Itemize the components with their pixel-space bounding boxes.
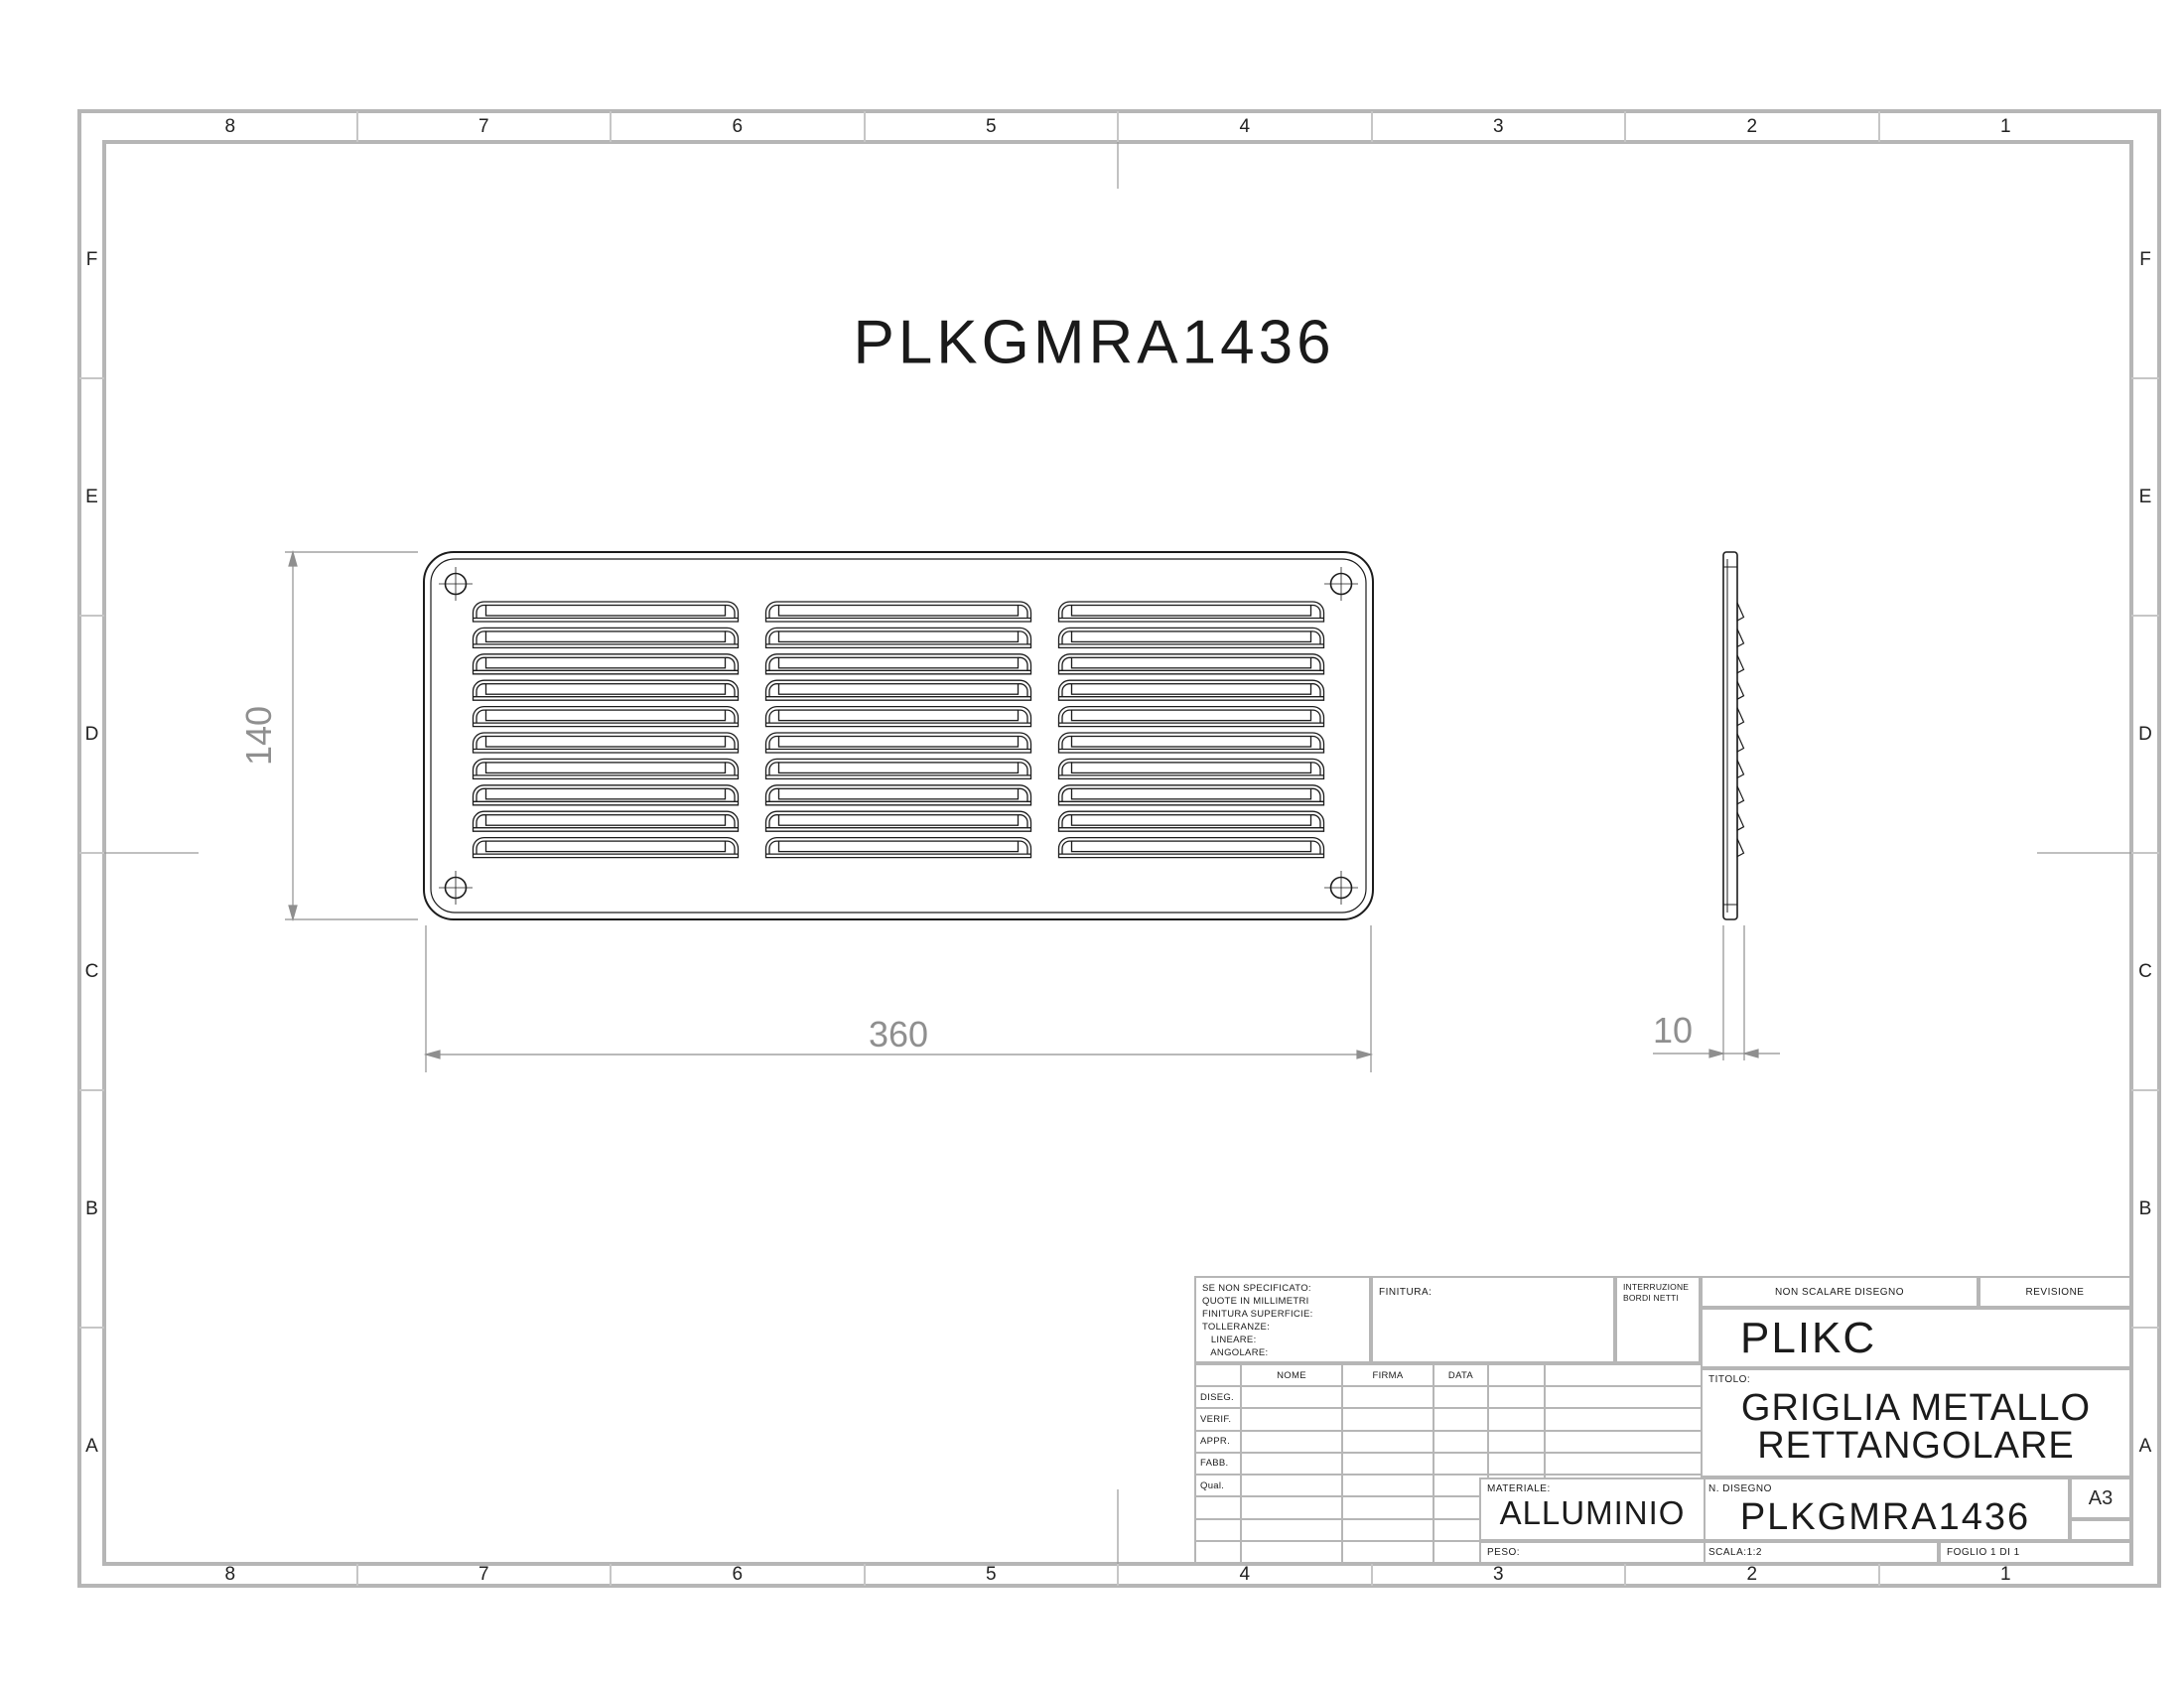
signoff-cell: [1489, 1387, 1544, 1407]
signoff-cell: [1343, 1409, 1433, 1429]
grid-column-label: 7: [356, 111, 611, 142]
signoff-cell: APPR.: [1196, 1432, 1240, 1452]
signoff-cell: [1196, 1497, 1240, 1517]
signoff-cell: VERIF.: [1196, 1409, 1240, 1429]
dimension-depth: 10: [1653, 1010, 1693, 1052]
signoff-cell: [1343, 1476, 1433, 1495]
signoff-cell: [1196, 1520, 1240, 1540]
signoff-cell: [1343, 1520, 1433, 1540]
signoff-cell: Qual.: [1196, 1476, 1240, 1495]
grid-column-label: 7: [356, 1564, 611, 1586]
grid-column-label: 2: [1624, 111, 1878, 142]
scale-value: SCALA:1:2: [1708, 1547, 1762, 1558]
paper-size-empty-cell: [2070, 1519, 2131, 1541]
signoff-cell: [1242, 1542, 1341, 1562]
part-title-line2: RETTANGOLARE: [1708, 1427, 2123, 1465]
grid-row-label: F: [2131, 142, 2159, 377]
signoff-cell: [1434, 1409, 1487, 1429]
signoff-header-cell: NOME: [1242, 1365, 1341, 1385]
dimension-height: 140: [238, 706, 280, 766]
signoff-cell: [1242, 1520, 1341, 1540]
paper-size-value: A3: [2089, 1487, 2113, 1510]
grid-column-label: 8: [104, 1564, 356, 1586]
signoff-cell: [1546, 1432, 1712, 1452]
drawing-number-label: N. DISEGNO: [1708, 1483, 2062, 1494]
grid-row-label: B: [2131, 1089, 2159, 1327]
grid-row-label: B: [79, 1089, 104, 1327]
signoff-cell: [1242, 1497, 1341, 1517]
border-row-letters-left: FEDCBA: [79, 142, 104, 1564]
signoff-cell: [1343, 1497, 1433, 1517]
tolerance-notes-cell: SE NON SPECIFICATO:QUOTE IN MILLIMETRIFI…: [1194, 1276, 1371, 1363]
signoff-cell: [1489, 1432, 1544, 1452]
dimension-width: 360: [869, 1014, 928, 1055]
grid-row-label: D: [2131, 615, 2159, 852]
tolerance-note-line: ANGOLARE:: [1202, 1346, 1363, 1359]
signoff-cell: [1242, 1387, 1341, 1407]
deburr-cell: INTERRUZIONEBORDI NETTI: [1615, 1276, 1701, 1363]
drawing-sheet: { "sheet": { "big_title": "PLKGMRA1436",…: [0, 0, 2184, 1688]
revision-label: REVISIONE: [2026, 1287, 2085, 1298]
border-row-letters-right: FEDCBA: [2131, 142, 2159, 1564]
grid-column-label: 1: [1878, 1564, 2132, 1586]
signoff-cell: [1343, 1542, 1433, 1562]
grid-column-label: 5: [864, 111, 1118, 142]
grid-row-label: E: [2131, 377, 2159, 615]
weight-label: PESO:: [1487, 1547, 1520, 1558]
signoff-cell: [1546, 1409, 1712, 1429]
tolerance-note-line: LINEARE:: [1202, 1334, 1363, 1346]
signoff-cell: [1196, 1542, 1240, 1562]
signoff-header-cell: [1489, 1365, 1544, 1385]
paper-size-cell: A3: [2070, 1477, 2131, 1519]
signoff-cell: DISEG.: [1196, 1387, 1240, 1407]
drawing-big-title: PLKGMRA1436: [853, 308, 1334, 378]
side-louver-tabs: [1737, 603, 1744, 857]
signoff-header-cell: [1546, 1365, 1712, 1385]
material-label: MATERIALE:: [1487, 1483, 1698, 1494]
grid-column-label: 4: [1117, 1564, 1371, 1586]
signoff-cell: [1343, 1454, 1433, 1474]
drawing-number-value: PLKGMRA1436: [1708, 1496, 2062, 1539]
drawing-number-cell: N. DISEGNO PLKGMRA1436: [1701, 1477, 2070, 1541]
signoff-header-cell: FIRMA: [1343, 1365, 1433, 1385]
grid-column-label: 2: [1624, 1564, 1878, 1586]
signoff-cell: [1242, 1454, 1341, 1474]
signoff-cell: [1546, 1454, 1712, 1474]
grid-column-label: 1: [1878, 111, 2132, 142]
tolerance-note-line: SE NON SPECIFICATO:: [1202, 1282, 1363, 1295]
part-title: GRIGLIA METALLO RETTANGOLARE: [1708, 1389, 2123, 1465]
grid-row-label: A: [79, 1327, 104, 1564]
signoff-cell: [1242, 1476, 1341, 1495]
signoff-cell: [1546, 1387, 1712, 1407]
signoff-cell: [1434, 1454, 1487, 1474]
grid-row-label: A: [2131, 1327, 2159, 1564]
signoff-cell: [1434, 1432, 1487, 1452]
weight-cell: PESO:: [1479, 1541, 1706, 1564]
material-cell: MATERIALE: ALLUMINIO: [1479, 1477, 1706, 1541]
louver-grid: [474, 602, 1324, 858]
grid-column-label: 3: [1371, 111, 1625, 142]
grid-column-label: 6: [610, 111, 864, 142]
revision-cell: REVISIONE: [1979, 1276, 2131, 1308]
tolerance-note-line: FINITURA SUPERFICIE:: [1202, 1308, 1363, 1321]
scale-cell: SCALA:1:2: [1701, 1541, 1939, 1564]
signoff-header-cell: DATA: [1434, 1365, 1487, 1385]
grid-column-label: 6: [610, 1564, 864, 1586]
signoff-header-cell: [1196, 1365, 1240, 1385]
grid-row-label: F: [79, 142, 104, 377]
grid-row-label: C: [2131, 852, 2159, 1089]
tolerance-note-line: TOLLERANZE:: [1202, 1321, 1363, 1334]
grid-row-label: D: [79, 615, 104, 852]
signoff-cell: FABB.: [1196, 1454, 1240, 1474]
finish-cell: FINITURA:: [1371, 1276, 1615, 1363]
do-not-scale-label: NON SCALARE DISEGNO: [1775, 1287, 1904, 1298]
grid-column-label: 4: [1117, 111, 1371, 142]
title-label: TITOLO:: [1708, 1374, 2123, 1385]
signoff-cell: [1434, 1387, 1487, 1407]
signoff-cell: [1489, 1409, 1544, 1429]
do-not-scale-cell: NON SCALARE DISEGNO: [1701, 1276, 1979, 1308]
side-view: [1723, 552, 1744, 919]
deburr-note-line: BORDI NETTI: [1623, 1293, 1693, 1304]
company-name: PLIKC: [1703, 1314, 1876, 1363]
finish-label: FINITURA:: [1379, 1287, 1432, 1298]
grid-column-label: 3: [1371, 1564, 1625, 1586]
title-cell: TITOLO: GRIGLIA METALLO RETTANGOLARE: [1701, 1368, 2131, 1477]
border-column-numbers-top: 87654321: [104, 111, 2131, 142]
signoff-cell: [1343, 1432, 1433, 1452]
company-cell: PLIKC: [1701, 1308, 2131, 1368]
dimension-lines: [285, 552, 1780, 1072]
material-value: ALLUMINIO: [1487, 1494, 1698, 1532]
grid-row-label: E: [79, 377, 104, 615]
grid-row-label: C: [79, 852, 104, 1089]
sheet-number-value: FOGLIO 1 DI 1: [1947, 1547, 2020, 1558]
signoff-cell: [1242, 1432, 1341, 1452]
tolerance-note-line: QUOTE IN MILLIMETRI: [1202, 1295, 1363, 1308]
grid-column-label: 5: [864, 1564, 1118, 1586]
grid-column-label: 8: [104, 111, 356, 142]
sheet-number-cell: FOGLIO 1 DI 1: [1939, 1541, 2131, 1564]
signoff-cell: [1489, 1454, 1544, 1474]
part-title-line1: GRIGLIA METALLO: [1708, 1389, 2123, 1427]
signoff-cell: [1343, 1387, 1433, 1407]
border-column-numbers-bottom: 87654321: [104, 1564, 2131, 1586]
deburr-note-line: INTERRUZIONE: [1623, 1282, 1693, 1293]
front-view: [424, 552, 1373, 919]
signoff-cell: [1242, 1409, 1341, 1429]
